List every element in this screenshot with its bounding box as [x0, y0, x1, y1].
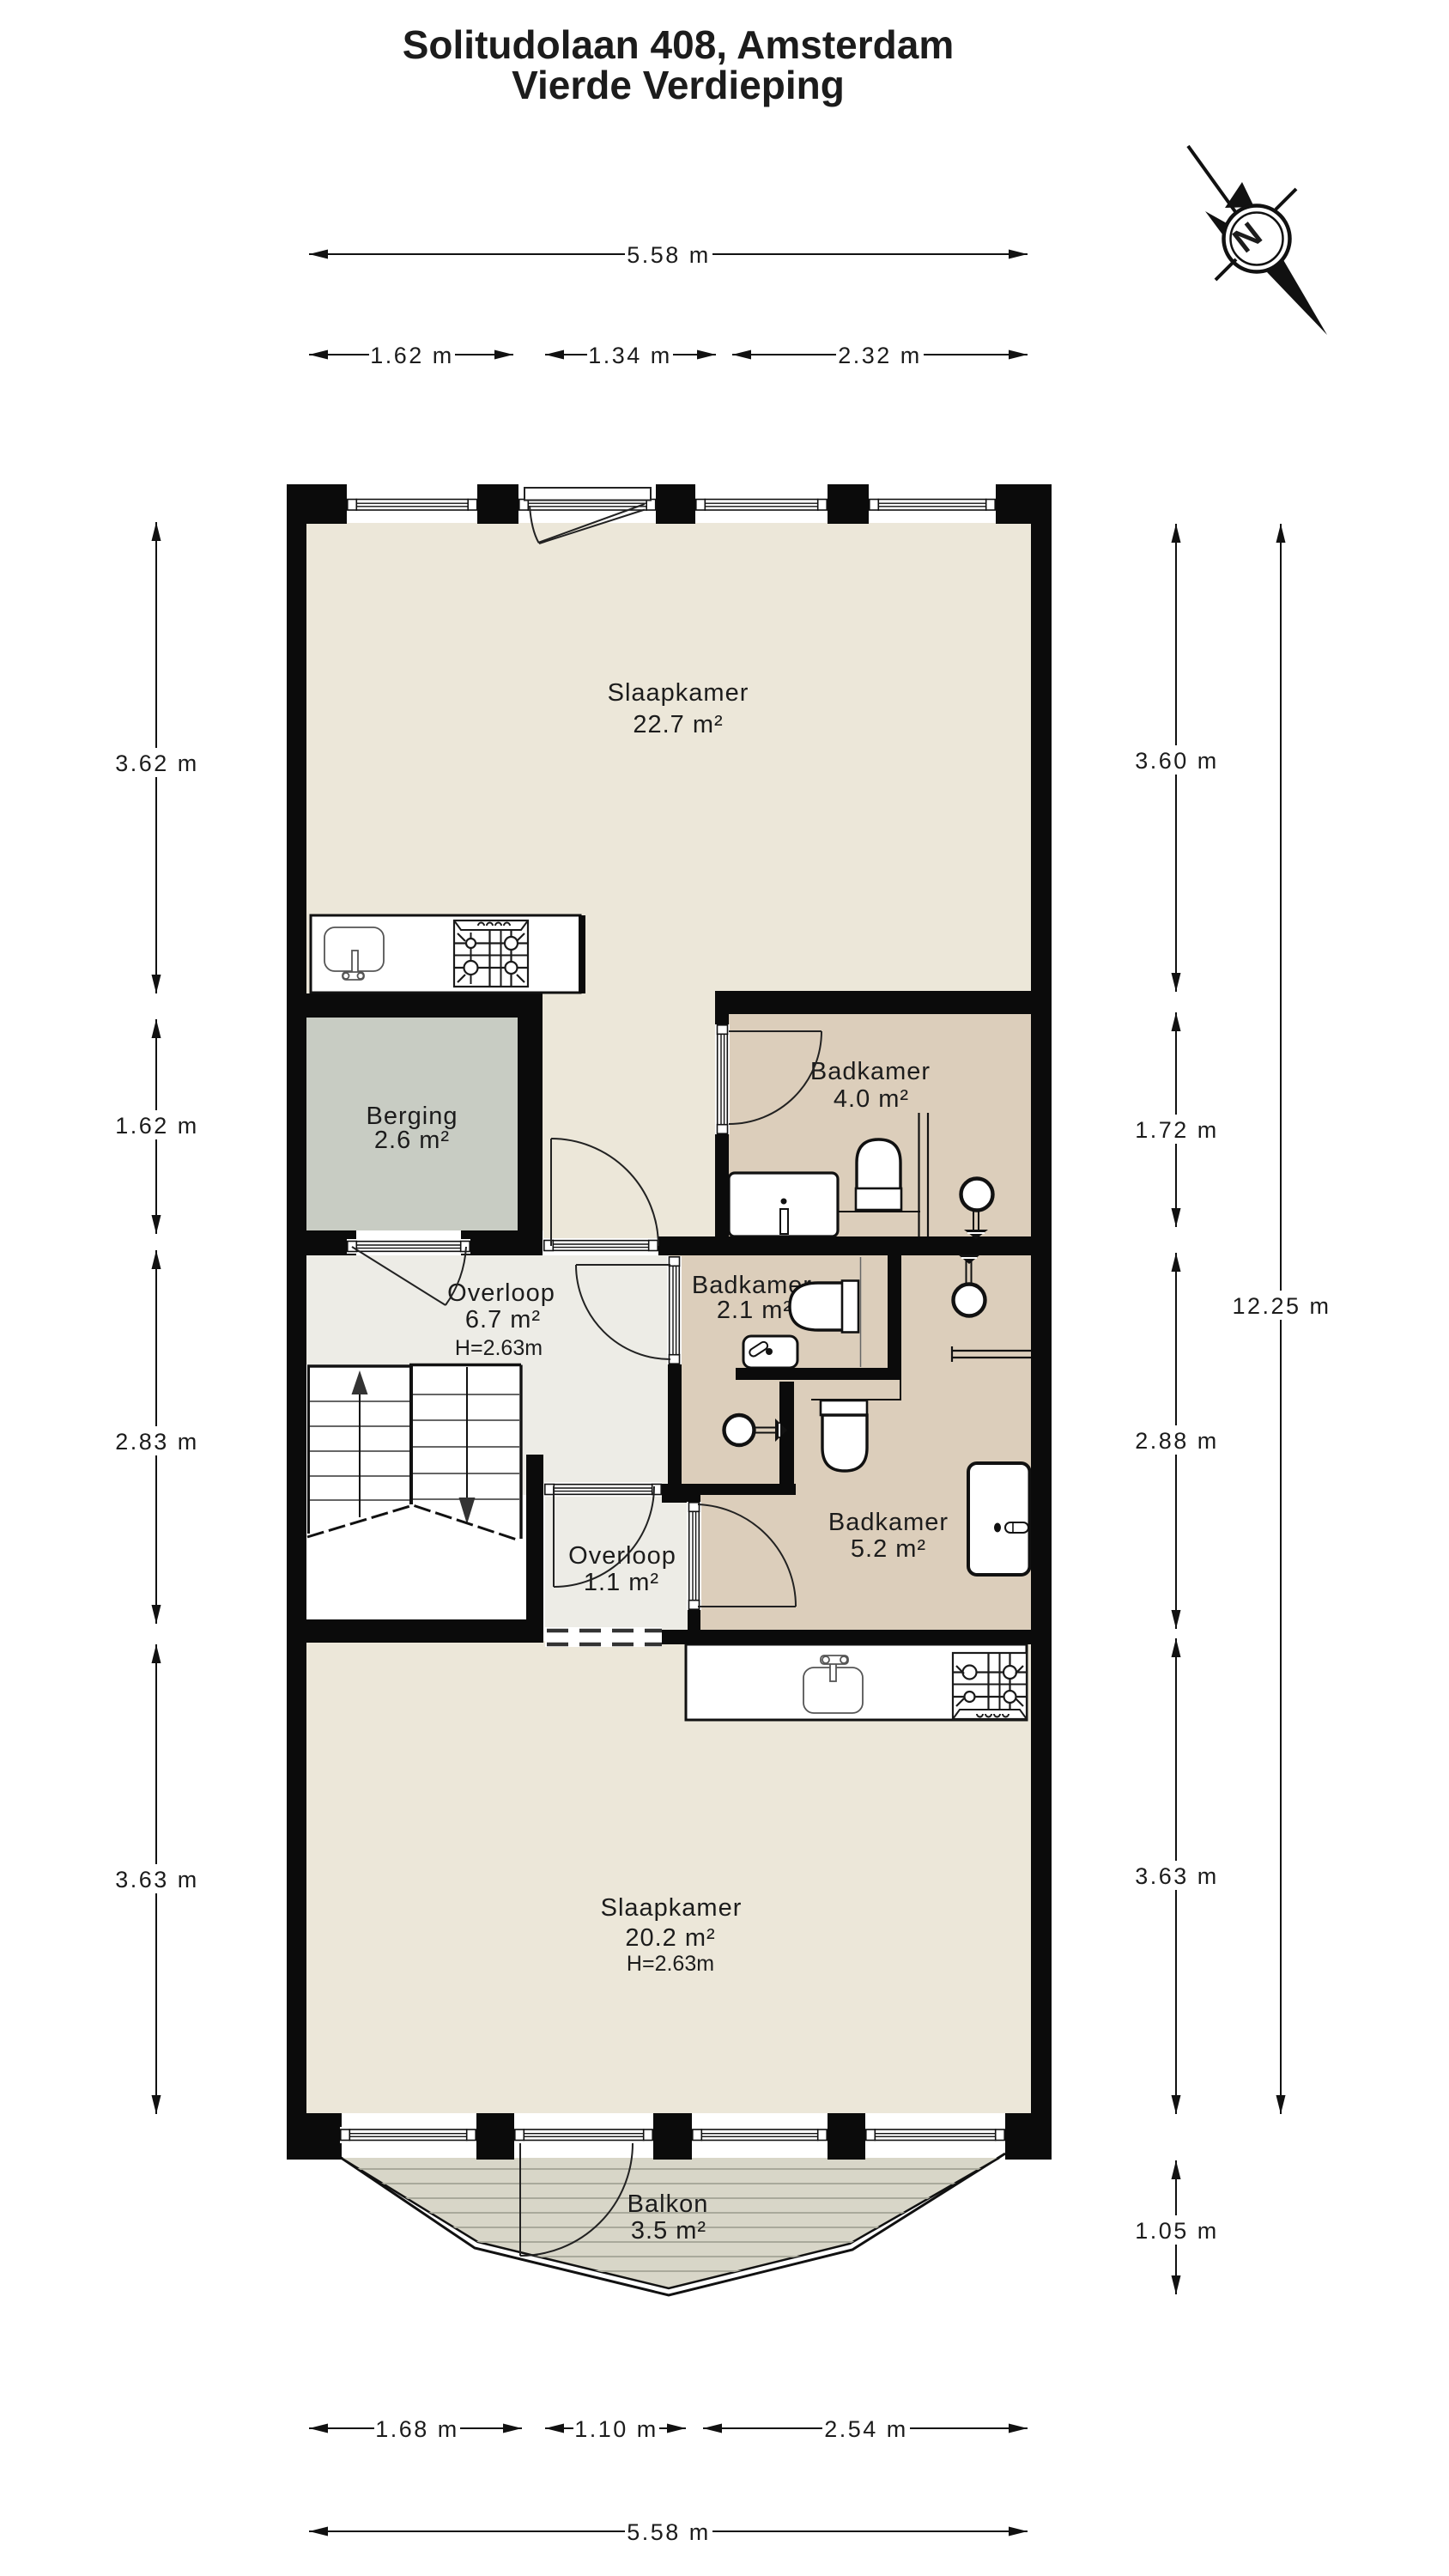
svg-text:Badkamer: Badkamer — [810, 1058, 931, 1085]
svg-text:3.5 m²: 3.5 m² — [631, 2217, 706, 2245]
svg-text:2.6 m²: 2.6 m² — [374, 1127, 450, 1154]
svg-text:5.2 m²: 5.2 m² — [851, 1535, 926, 1563]
svg-text:Vierde Verdieping: Vierde Verdieping — [512, 63, 845, 107]
svg-text:Slaapkamer: Slaapkamer — [608, 679, 749, 707]
svg-text:Overloop: Overloop — [568, 1542, 676, 1570]
svg-text:1.05 m: 1.05 m — [1135, 2218, 1219, 2244]
svg-text:5.58 m: 5.58 m — [627, 2519, 711, 2545]
svg-text:12.25 m: 12.25 m — [1232, 1293, 1331, 1319]
svg-text:22.7 m²: 22.7 m² — [633, 711, 723, 738]
svg-text:2.1 m²: 2.1 m² — [717, 1297, 792, 1324]
svg-text:1.34 m: 1.34 m — [588, 343, 672, 368]
svg-text:2.83 m: 2.83 m — [115, 1429, 199, 1455]
svg-text:1.72 m: 1.72 m — [1135, 1117, 1219, 1143]
svg-text:1.62 m: 1.62 m — [115, 1113, 199, 1139]
svg-text:1.1 m²: 1.1 m² — [584, 1569, 659, 1596]
svg-text:3.63 m: 3.63 m — [115, 1867, 199, 1893]
svg-text:H=2.63m: H=2.63m — [455, 1336, 543, 1360]
svg-text:2.88 m: 2.88 m — [1135, 1428, 1219, 1454]
svg-text:Solitudolaan 408, Amsterdam: Solitudolaan 408, Amsterdam — [403, 22, 954, 67]
svg-text:2.32 m: 2.32 m — [838, 343, 922, 368]
svg-text:Balkon: Balkon — [627, 2190, 709, 2218]
svg-text:6.7 m²: 6.7 m² — [465, 1306, 541, 1334]
svg-text:3.62 m: 3.62 m — [115, 750, 199, 776]
svg-text:2.54 m: 2.54 m — [824, 2416, 908, 2442]
svg-text:4.0 m²: 4.0 m² — [834, 1085, 909, 1113]
svg-text:1.68 m: 1.68 m — [375, 2416, 459, 2442]
svg-text:5.58 m: 5.58 m — [627, 242, 711, 268]
svg-text:1.10 m: 1.10 m — [574, 2416, 658, 2442]
svg-text:Badkamer: Badkamer — [828, 1509, 949, 1536]
svg-text:1.62 m: 1.62 m — [370, 343, 454, 368]
svg-text:20.2 m²: 20.2 m² — [625, 1924, 715, 1952]
svg-text:3.60 m: 3.60 m — [1135, 748, 1219, 774]
svg-text:Slaapkamer: Slaapkamer — [601, 1894, 743, 1922]
svg-text:Overloop: Overloop — [447, 1279, 555, 1307]
svg-text:H=2.63m: H=2.63m — [627, 1952, 714, 1976]
svg-text:3.63 m: 3.63 m — [1135, 1863, 1219, 1889]
